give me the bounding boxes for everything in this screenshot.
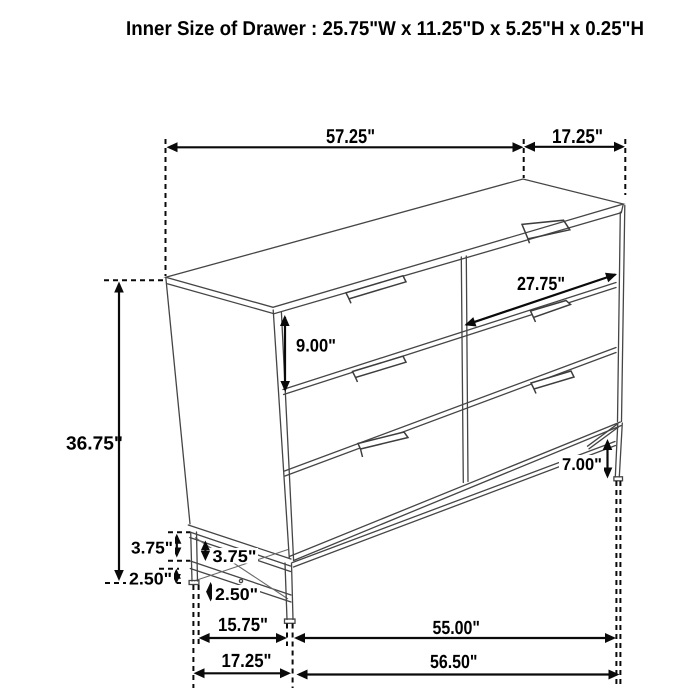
svg-text:56.50": 56.50" bbox=[430, 652, 478, 673]
svg-text:17.25": 17.25" bbox=[552, 126, 603, 148]
svg-text:17.25": 17.25" bbox=[222, 651, 272, 672]
svg-text:2.50": 2.50" bbox=[215, 585, 258, 604]
svg-text:55.00": 55.00" bbox=[433, 618, 481, 639]
svg-text:Inner Size of Drawer : 25.75"W: Inner Size of Drawer : 25.75"W x 11.25"D… bbox=[126, 18, 644, 40]
svg-text:3.75": 3.75" bbox=[213, 547, 257, 566]
svg-text:57.25": 57.25" bbox=[326, 126, 375, 148]
svg-text:2.50": 2.50" bbox=[129, 570, 172, 589]
svg-text:7.00": 7.00" bbox=[562, 455, 602, 474]
svg-text:9.00": 9.00" bbox=[296, 336, 336, 356]
svg-text:27.75": 27.75" bbox=[517, 274, 565, 295]
svg-text:3.75": 3.75" bbox=[131, 539, 173, 558]
svg-text:15.75": 15.75" bbox=[218, 615, 268, 636]
svg-text:36.75": 36.75" bbox=[66, 434, 123, 455]
